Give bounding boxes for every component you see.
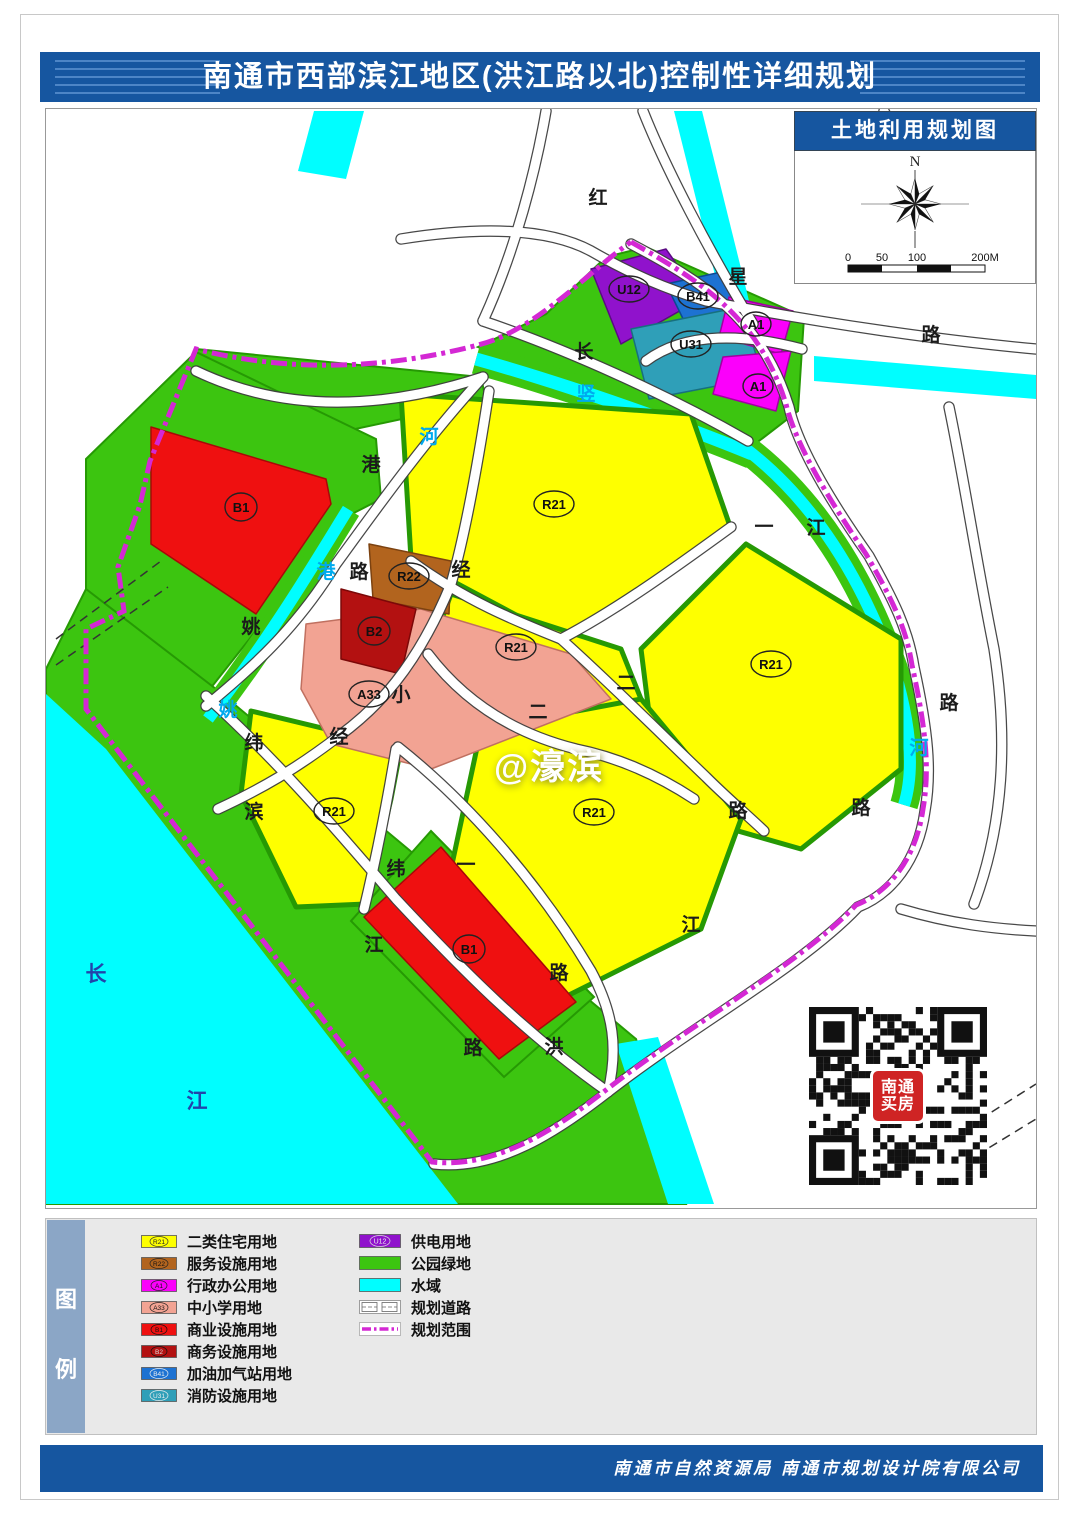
watermark: @濠滨 xyxy=(494,739,604,790)
road-label: 经 xyxy=(329,725,348,748)
north-letter: N xyxy=(910,154,921,170)
road-label: 港 xyxy=(361,454,381,476)
river-label: 河 xyxy=(909,737,928,759)
svg-text:B1: B1 xyxy=(155,1327,163,1334)
legend-item: U31 消防设施用地 xyxy=(141,1387,277,1403)
legend-strip-char: 图 xyxy=(55,1282,77,1314)
scale-tick: 50 xyxy=(876,252,888,264)
svg-text:A33: A33 xyxy=(153,1305,165,1312)
scale-bar: 0 50 100 200M xyxy=(795,251,1035,281)
footer-bar: 南通市自然资源局 南通市规划设计院有限公司 xyxy=(40,1445,1043,1492)
road-label: 星 xyxy=(728,266,747,288)
compass-rose xyxy=(889,178,941,230)
road-label: 长 xyxy=(574,341,594,363)
zone-badge: B1 xyxy=(233,500,250,515)
road-label: 江 xyxy=(681,914,700,936)
road-label: 红 xyxy=(588,186,607,209)
road-label: 路 xyxy=(728,799,748,822)
planning-map: 红 星 路 长 竖 河 港 港 路 姚 姚 经 经 纬 滨 一 纬 江 路 路 … xyxy=(45,108,1037,1209)
road-label: 洪 xyxy=(544,1036,563,1058)
legend-item: A1 行政办公用地 xyxy=(141,1277,277,1293)
footer-credits: 南通市自然资源局 南通市规划设计院有限公司 xyxy=(40,1445,1043,1492)
river-label: 竖 xyxy=(576,383,595,405)
road-label: 二 xyxy=(616,673,635,694)
road-label: 姚 xyxy=(240,615,260,638)
road-label: 路 xyxy=(851,796,871,819)
land-use-inset: 土地利用规划图 N 0 50 100 200M xyxy=(794,111,1036,283)
road-label: 路 xyxy=(349,560,369,583)
qr-logo-line2: 买房 xyxy=(881,1096,915,1113)
road-label: 路 xyxy=(549,961,569,984)
zone-badge: A33 xyxy=(357,687,381,702)
legend-item: U12 供电用地 xyxy=(359,1233,471,1249)
road-label: 二 xyxy=(528,702,547,723)
planned-road-symbol xyxy=(359,1300,401,1314)
legend-item: B1 商业设施用地 xyxy=(141,1321,277,1337)
zone-badge: R21 xyxy=(582,805,606,820)
zone-badge: A1 xyxy=(750,379,767,394)
inset-body: N 0 50 100 200M xyxy=(794,151,1036,284)
qr-code: 南通 买房 xyxy=(809,1007,987,1185)
yangtze-label: 长 xyxy=(86,963,108,986)
road-label: 滨 xyxy=(244,800,263,823)
zone-badge: R21 xyxy=(504,640,528,655)
zone-badge: R21 xyxy=(542,497,566,512)
road-label: 纬 xyxy=(244,731,263,754)
zone-badge: B41 xyxy=(686,289,710,304)
svg-text:R22: R22 xyxy=(153,1261,165,1268)
zone-badge: R21 xyxy=(322,804,346,819)
road-label: 路 xyxy=(939,691,959,714)
legend-item: 规划道路 xyxy=(359,1299,471,1315)
road-label: 纬 xyxy=(386,857,405,880)
svg-text:U12: U12 xyxy=(374,1239,387,1246)
zone-badge: R22 xyxy=(397,569,421,584)
north-compass: N xyxy=(795,151,1035,251)
svg-text:R21: R21 xyxy=(153,1239,165,1246)
road-label: 一 xyxy=(456,855,475,876)
zone-badge: R21 xyxy=(759,657,783,672)
legend-item: B2 商务设施用地 xyxy=(141,1343,277,1359)
svg-text:U31: U31 xyxy=(153,1393,165,1400)
river-label: 港 xyxy=(316,561,336,583)
svg-text:B2: B2 xyxy=(155,1349,163,1356)
zone-badge: U31 xyxy=(679,337,703,352)
road-label: 路 xyxy=(463,1036,483,1059)
legend-strip-char: 例 xyxy=(55,1352,77,1384)
svg-text:A1: A1 xyxy=(155,1283,163,1290)
scale-tick: 100 xyxy=(908,252,926,264)
legend-item: R21 二类住宅用地 xyxy=(141,1233,277,1249)
svg-text:B41: B41 xyxy=(153,1371,165,1378)
planning-boundary-symbol xyxy=(359,1322,401,1336)
road-label: 一 xyxy=(754,517,773,538)
legend-item: 规划范围 xyxy=(359,1321,471,1337)
zone-badge: B2 xyxy=(366,624,383,639)
scale-tick: 200M xyxy=(971,252,999,264)
zone-badge: A1 xyxy=(748,317,765,332)
road-label: 路 xyxy=(921,323,941,346)
zone-badge: U12 xyxy=(617,282,641,297)
legend-side-strip: 图 例 xyxy=(47,1220,85,1433)
legend-item: B41 加油加气站用地 xyxy=(141,1365,292,1381)
road-label: 江 xyxy=(806,517,825,539)
legend-item: A33 中小学用地 xyxy=(141,1299,262,1315)
qr-logo-line1: 南通 xyxy=(881,1079,915,1096)
river-label: 姚 xyxy=(217,698,237,721)
legend-item: R22 服务设施用地 xyxy=(141,1255,277,1271)
scale-tick: 0 xyxy=(845,252,851,264)
legend-item: 公园绿地 xyxy=(359,1255,471,1271)
zone-badge: B1 xyxy=(461,942,478,957)
title-banner: 南通市西部滨江地区(洪江路以北)控制性详细规划 xyxy=(40,52,1040,102)
yangtze-label: 江 xyxy=(187,1090,208,1113)
school-label: 小 xyxy=(391,684,410,706)
legend-item: 水域 xyxy=(359,1277,441,1293)
legend-panel: 图 例 R21 二类住宅用地 R22 服务设施用地 A1 行政办公用地 A33 … xyxy=(45,1218,1037,1435)
inset-title: 土地利用规划图 xyxy=(794,111,1036,151)
road-label: 经 xyxy=(451,558,470,581)
river-label: 河 xyxy=(419,426,438,448)
road-label: 江 xyxy=(364,934,383,956)
page-title: 南通市西部滨江地区(洪江路以北)控制性详细规划 xyxy=(40,52,1040,102)
qr-logo: 南通 买房 xyxy=(870,1068,926,1124)
